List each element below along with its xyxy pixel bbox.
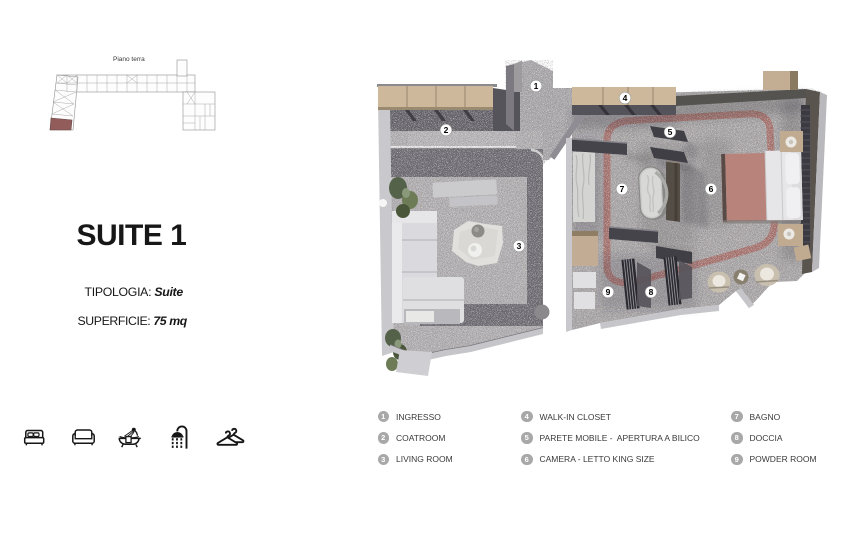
svg-text:7: 7 — [620, 184, 625, 194]
svg-text:4: 4 — [623, 93, 628, 103]
svg-text:1: 1 — [534, 81, 539, 91]
svg-text:2: 2 — [444, 125, 449, 135]
svg-text:6: 6 — [709, 184, 714, 194]
svg-text:3: 3 — [517, 241, 522, 251]
svg-text:9: 9 — [606, 287, 611, 297]
svg-text:8: 8 — [649, 287, 654, 297]
svg-text:5: 5 — [668, 127, 673, 137]
